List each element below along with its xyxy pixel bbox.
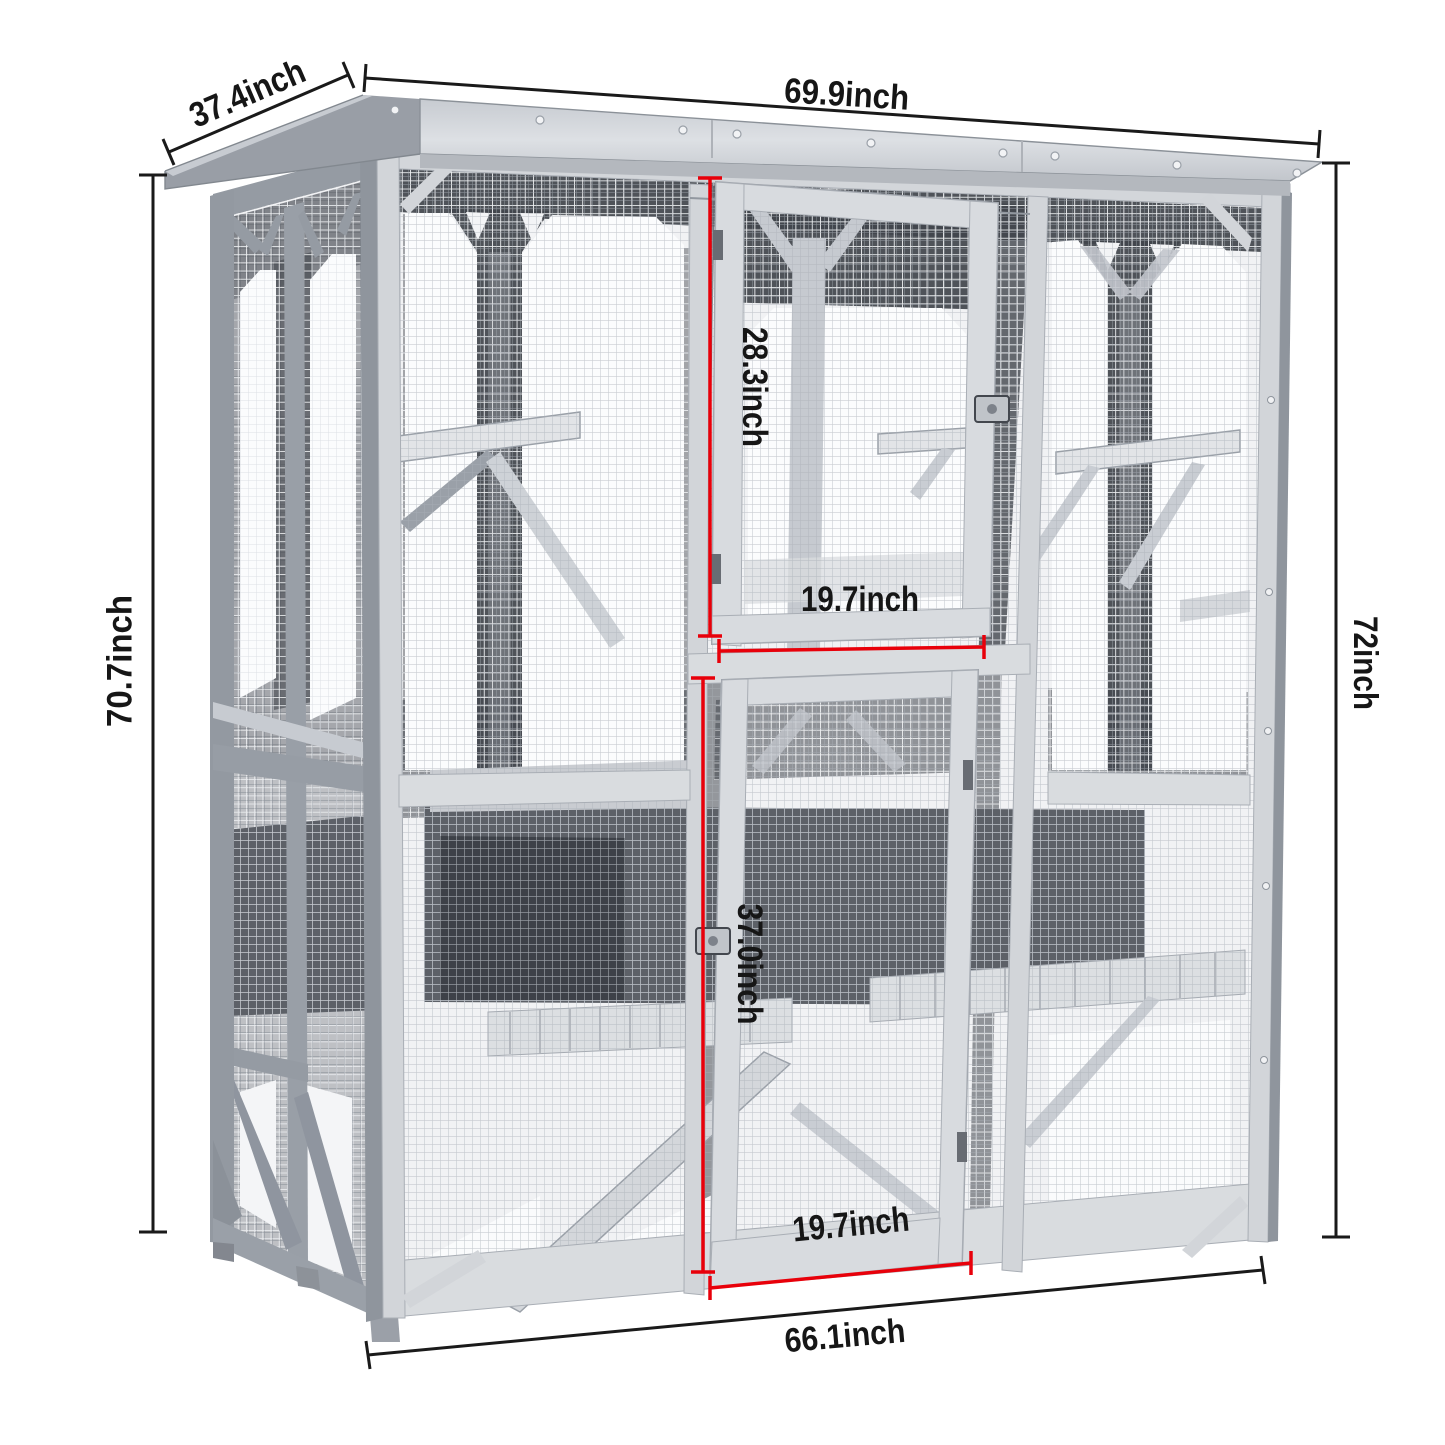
svg-text:70.7inch: 70.7inch: [100, 595, 139, 727]
svg-text:37.0inch: 37.0inch: [730, 904, 769, 1025]
svg-text:69.9inch: 69.9inch: [783, 71, 910, 118]
svg-text:19.7inch: 19.7inch: [801, 580, 919, 619]
svg-text:72inch: 72inch: [1346, 616, 1384, 710]
svg-text:28.3inch: 28.3inch: [735, 327, 774, 447]
